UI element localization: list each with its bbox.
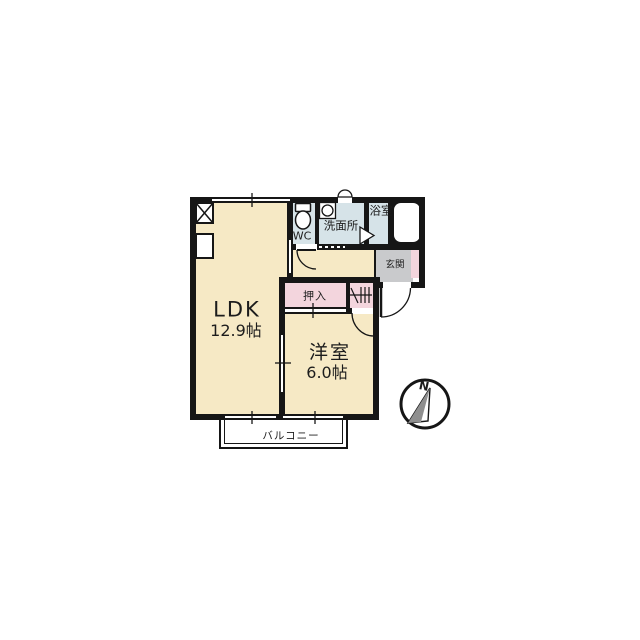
wc-label: WC	[293, 231, 312, 242]
western-room-size-label: 6.0帖	[306, 365, 347, 381]
plan-linework	[0, 0, 640, 640]
entrance-label: 玄関	[385, 260, 404, 270]
top-door-arc	[338, 190, 352, 197]
western-room-label: 洋室	[309, 344, 351, 363]
floor-plan: LDK 12.9帖 洋室 6.0帖 WC 洗面所 浴室 玄関 押入 バルコニー …	[0, 0, 640, 640]
bathroom-label: 浴室	[370, 205, 393, 217]
kitchen-x-icon	[196, 203, 213, 223]
washroom-label: 洗面所	[324, 220, 359, 232]
washing-machine-icon	[320, 203, 336, 219]
bathroom-door-icon	[360, 227, 374, 244]
wc-door-swing	[297, 250, 316, 269]
entrance-door-swing	[381, 288, 411, 317]
balcony-label: バルコニー	[262, 431, 319, 442]
closet-label: 押入	[303, 291, 327, 302]
ldk-label: LDK	[213, 300, 261, 321]
western-room-door-swing	[352, 313, 374, 336]
ldk-size-label: 12.9帖	[210, 323, 262, 339]
toilet-icon	[296, 204, 311, 230]
shoe-shelf-icon	[350, 287, 372, 303]
